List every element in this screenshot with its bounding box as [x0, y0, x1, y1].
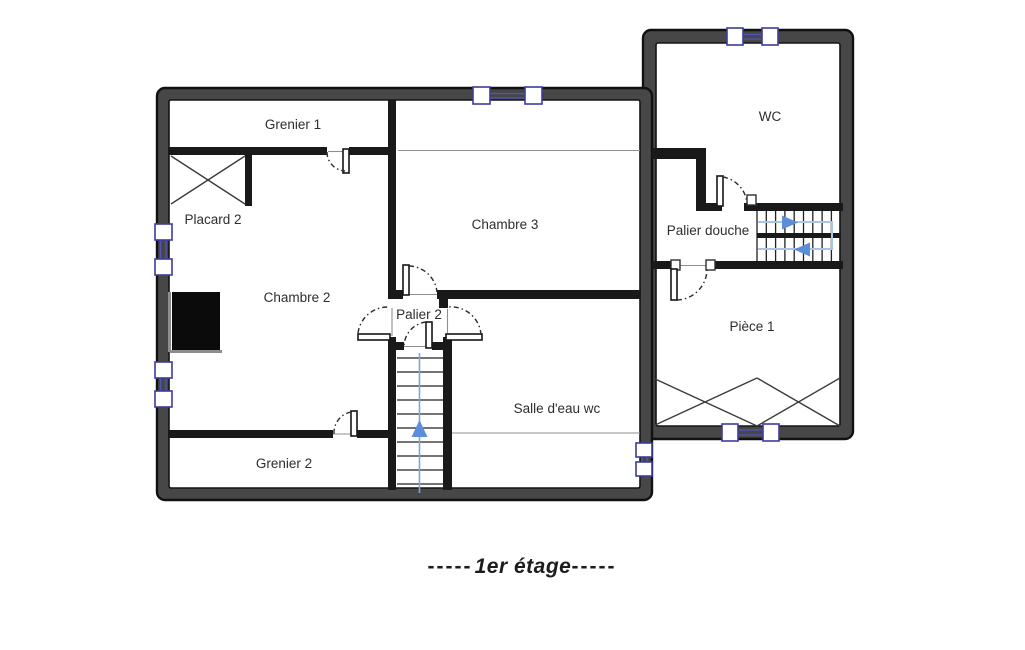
jamb-palier-douche [747, 195, 756, 205]
label-wc: WC [759, 109, 782, 124]
wall-wc-vertical [696, 148, 706, 211]
label-placard2: Placard 2 [184, 212, 241, 227]
wall-stairwell-right [443, 337, 452, 490]
label-chambre2: Chambre 2 [264, 290, 331, 305]
wall-grenier2-left [168, 430, 333, 438]
label-palier2: Palier 2 [396, 307, 442, 322]
label-chambre3: Chambre 3 [472, 217, 539, 232]
wall-stairtop-stub-right [432, 342, 443, 350]
title-dashes-left: ----- [428, 555, 473, 578]
jamb-piece1-right [706, 260, 715, 270]
wall-palier2-ne-corner [439, 290, 448, 308]
chimney [170, 292, 223, 352]
title-text: 1er étage [475, 555, 572, 578]
wall-stairtop-stub-left [396, 342, 404, 350]
label-grenier1: Grenier 1 [265, 117, 321, 132]
label-piece1: Pièce 1 [729, 319, 774, 334]
annex-stairs-mid-landing [757, 233, 841, 238]
wall-chambre2-chambre3 [388, 100, 396, 297]
floor-plan-page: Grenier 1 Placard 2 Chambre 2 Chambre 3 … [0, 0, 1025, 650]
wall-palier2-north-stub [388, 290, 403, 299]
wall-piece1-north-right [714, 261, 843, 269]
label-salle-eau: Salle d'eau wc [514, 401, 601, 416]
wall-stairwell-left [388, 337, 396, 490]
wall-grenier2-right [357, 430, 388, 438]
wall-piece1-north-left [652, 261, 672, 269]
wall-chambre3-salle-eau [437, 290, 641, 299]
floor-plan-drawing: Grenier 1 Placard 2 Chambre 2 Chambre 3 … [0, 0, 1025, 650]
floor-title: ----- 1er étage ----- [428, 555, 617, 578]
label-palier-douche: Palier douche [667, 223, 750, 238]
label-grenier2: Grenier 2 [256, 456, 312, 471]
wall-placard-right [245, 151, 252, 206]
title-dashes-right: ----- [572, 555, 617, 578]
wall-annex-stairs-top [744, 203, 843, 211]
